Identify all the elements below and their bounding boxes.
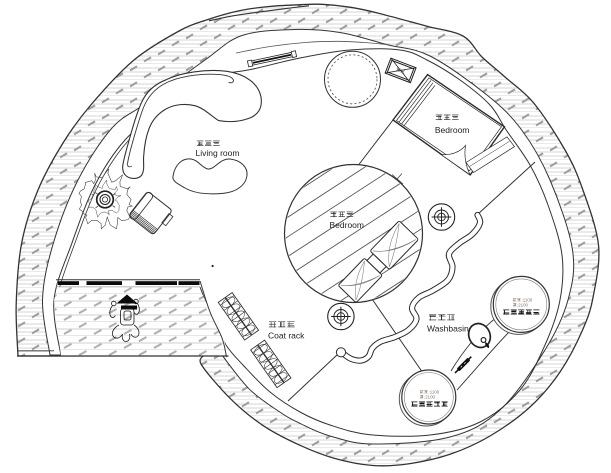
svg-text:Coat rack: Coat rack bbox=[268, 331, 305, 341]
svg-text:Bedroom: Bedroom bbox=[330, 220, 365, 230]
svg-text::2100: :2100 bbox=[424, 395, 436, 400]
svg-text:Bedroom: Bedroom bbox=[435, 125, 470, 135]
svg-text:Living room: Living room bbox=[196, 148, 240, 158]
svg-text:Washbasin: Washbasin bbox=[427, 324, 469, 334]
svg-text::2100: :2100 bbox=[517, 303, 529, 308]
